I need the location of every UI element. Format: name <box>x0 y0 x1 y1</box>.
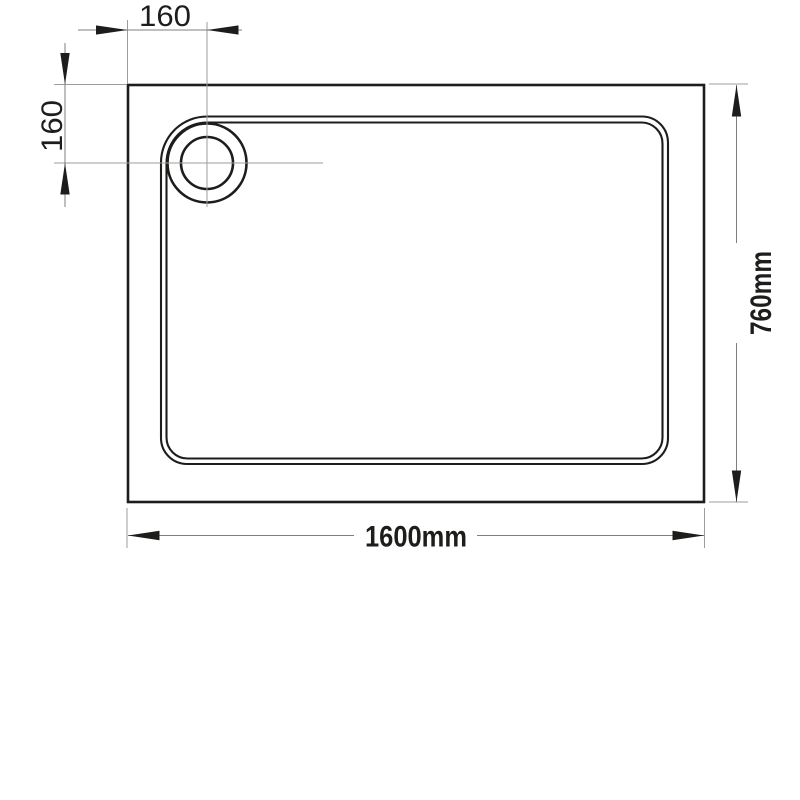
drawing-canvas: 160 160 1600mm 760mm <box>0 0 800 800</box>
tray-rim-outer-line <box>161 117 668 465</box>
dim-top-arrow-right-icon <box>207 25 239 34</box>
dim-top-label: 160 <box>139 0 191 33</box>
dim-width-arrow-left-icon <box>128 531 160 540</box>
tray-outer-edge <box>128 85 704 502</box>
dim-depth-label: 760mm <box>745 251 778 335</box>
dim-width-arrow-right-icon <box>673 531 705 540</box>
dim-left-label: 160 <box>36 100 69 152</box>
dim-width-label: 1600mm <box>365 521 467 554</box>
dim-left-arrow-bottom-icon <box>60 163 69 195</box>
dim-left-arrow-top-icon <box>60 53 69 85</box>
dim-depth-arrow-top-icon <box>732 85 741 117</box>
dim-top-arrow-left-icon <box>96 25 128 34</box>
dim-depth-arrow-bottom-icon <box>732 471 741 503</box>
tray-rim-inner-line <box>167 123 663 459</box>
shower-tray-technical-drawing: 160 160 1600mm 760mm <box>0 0 800 800</box>
